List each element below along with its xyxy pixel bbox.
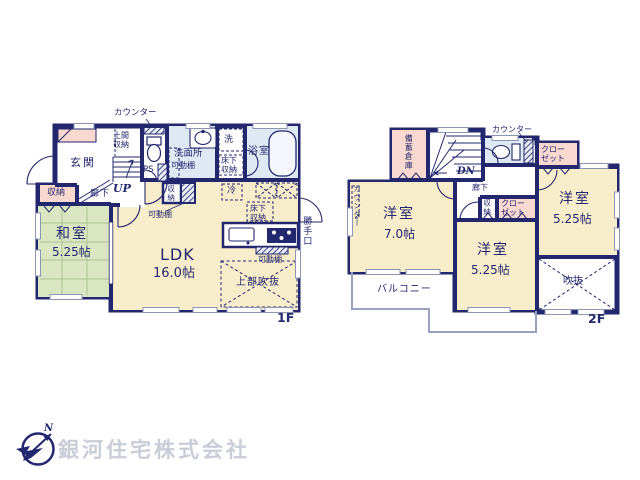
- floor1-label: 1F: [277, 311, 294, 325]
- company-name: 銀河住宅株式会社: [58, 434, 250, 464]
- label-bedroom-west: 洋室: [383, 206, 415, 222]
- label-closet-center: クローゼット: [501, 199, 528, 217]
- label-tatami-size: 5.25帖: [52, 246, 91, 260]
- label-back-door: 勝手口: [301, 216, 311, 246]
- compass-north-label: N: [44, 423, 53, 435]
- label-counter-1f: カウンター: [114, 109, 157, 119]
- label-ldk-size: 16.0帖: [153, 267, 195, 282]
- label-hallway-2f: 廊下: [472, 183, 488, 192]
- bathtub-icon: [269, 131, 296, 176]
- label-hallway-1f: 廊下: [90, 189, 110, 199]
- movable-shelf-block: [181, 183, 195, 203]
- floor2-label: 2F: [588, 312, 605, 326]
- label-bedroom-east-size: 5.25帖: [553, 213, 592, 227]
- label-entrance: 玄関: [70, 157, 96, 170]
- label-stairs-down: DN: [457, 166, 475, 178]
- stove-icon: [267, 228, 296, 243]
- floorplan-drawing: [0, 0, 640, 480]
- label-doma-storage: 土間収納: [113, 131, 133, 149]
- label-stairs-up: UP: [113, 183, 131, 196]
- sink-icon: [190, 128, 216, 148]
- label-bedroom-west-size: 7.0帖: [384, 228, 415, 242]
- label-stock-storage: 備蓄倉庫: [404, 134, 413, 170]
- label-counter-2f: カウンター: [492, 125, 532, 134]
- label-open-ceiling-above: 上部吹抜: [236, 277, 280, 289]
- label-storage-hall-1f: 収納: [47, 188, 65, 198]
- label-bedroom-center-size: 5.25帖: [471, 264, 510, 278]
- label-bedroom-east: 洋室: [559, 191, 591, 207]
- label-movable-shelf-washroom: 可動棚: [171, 161, 195, 170]
- label-refrigerator: 冷: [227, 186, 236, 196]
- label-closet-north: クローゼット: [541, 145, 568, 163]
- shoe-cabinet: [58, 129, 96, 142]
- label-pipe-space: PS: [143, 166, 154, 176]
- label-washroom: 洗面所: [174, 149, 203, 160]
- label-underfloor-washroom: 床下収納: [221, 156, 239, 174]
- label-ldk: LDK: [160, 246, 195, 264]
- label-storage-ldk: 収納: [166, 185, 175, 202]
- label-movable-shelf-ldk: 可動棚: [148, 210, 172, 219]
- label-movable-shelf-kitchen: 可動棚: [258, 255, 282, 264]
- label-balcony: バルコニー: [377, 284, 432, 296]
- kitchen-sink-icon: [229, 228, 254, 241]
- label-bathroom: 浴室: [248, 146, 270, 158]
- label-underfloor-kitchen: 床下収納: [250, 204, 268, 222]
- label-storage-hall-2f: 収納: [482, 199, 491, 216]
- label-counter-west: カウンター: [352, 185, 361, 228]
- floorplan-page: カウンター 玄関 土間収納 PS UP 洗面所 可動棚 洗 床下収納 浴室 廊下…: [0, 0, 640, 480]
- label-bedroom-center: 洋室: [477, 242, 509, 258]
- label-laundry: 洗: [224, 135, 233, 145]
- label-open-ceiling-2f: 吹抜: [563, 276, 583, 288]
- compass-icon: [16, 434, 54, 465]
- label-tatami-room: 和室: [56, 226, 88, 242]
